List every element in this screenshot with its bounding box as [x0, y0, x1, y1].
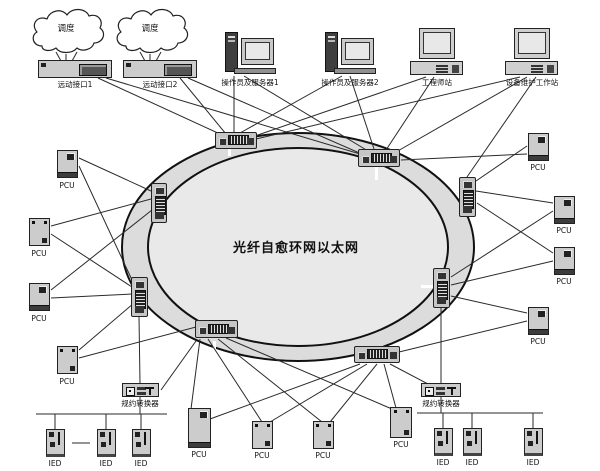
- pcu-label: PCU: [556, 277, 571, 286]
- pcu-bottom-3: [313, 421, 334, 449]
- cloud-label: 调度: [57, 25, 74, 34]
- pcu-right-2: [554, 196, 575, 224]
- ring-switch-right-lower: [433, 268, 450, 308]
- pcu-label: PCU: [530, 163, 545, 172]
- converter-port-icon: [126, 387, 135, 396]
- converter-antenna-icon: [145, 387, 154, 389]
- label-telecontrol-interface-2: 远动接口2: [143, 80, 178, 89]
- ring-switch-bottom-right: [354, 346, 400, 363]
- ied-left-1: [46, 429, 65, 457]
- ied-label: IED: [49, 459, 62, 468]
- server-tower-icon: [325, 32, 338, 72]
- ied-label: IED: [135, 459, 148, 468]
- ring-switch-top-right: [358, 149, 400, 167]
- converter-port-icon: [425, 387, 434, 396]
- pcu-label: PCU: [393, 440, 408, 449]
- pcu-label: PCU: [59, 377, 74, 386]
- ied-label: IED: [437, 458, 450, 467]
- converter-antenna-icon: [447, 387, 456, 389]
- server-base: [334, 68, 376, 74]
- switch-ports: [437, 281, 448, 300]
- pcu-label: PCU: [315, 451, 330, 460]
- switch-ports: [228, 135, 249, 145]
- pcu-label: PCU: [59, 181, 74, 190]
- ied-label: IED: [466, 458, 479, 467]
- label-engineer-station: 工程师站: [422, 78, 452, 87]
- server-monitor-icon: [341, 38, 374, 65]
- switch-ports: [155, 196, 166, 215]
- pcu-right-3: [554, 247, 575, 275]
- pcu-left-4: [57, 346, 78, 374]
- workstation-monitor-icon: [419, 28, 455, 59]
- pcu-label: PCU: [530, 337, 545, 346]
- workstation-monitor-icon: [514, 28, 550, 59]
- ring-switch-left-upper: [151, 183, 167, 223]
- network-diagram: 调度 调度 远动接口1 远动接口2 操作员及服务器1 操作员及服务器2 工程师站…: [0, 0, 600, 471]
- maintenance-workstation-icon: [504, 28, 560, 76]
- label-operator-server-1: 操作员及服务器1: [221, 78, 278, 87]
- label-telecontrol-interface-1: 远动接口1: [58, 80, 93, 89]
- pcu-bottom-right: [390, 407, 412, 438]
- ring-title: 光纤自愈环网以太网: [233, 237, 359, 256]
- ied-right-3: [524, 428, 543, 456]
- pcu-bottom-2: [252, 421, 273, 449]
- pcu-label: PCU: [254, 451, 269, 460]
- ied-left-3: [132, 429, 151, 457]
- label-operator-server-2: 操作员及服务器2: [321, 78, 378, 87]
- ied-label: IED: [527, 458, 540, 467]
- ied-label: IED: [100, 459, 113, 468]
- server-base: [234, 68, 276, 74]
- converter-label: 规约转换器: [422, 399, 460, 408]
- ring-switch-right-upper: [459, 177, 476, 217]
- cloud-shapes: [33, 9, 187, 52]
- pcu-label: PCU: [556, 226, 571, 235]
- workstation-case-icon: [505, 61, 558, 75]
- ied-right-2: [463, 428, 482, 456]
- switch-ports: [135, 290, 146, 309]
- pcu-left-1: [57, 150, 78, 178]
- pcu-bottom-1: [188, 408, 211, 448]
- protocol-converter-right: [421, 383, 461, 397]
- switch-ports: [367, 349, 388, 359]
- telecontrol-interface-2-device: [123, 60, 197, 78]
- cloud-label: 调度: [141, 25, 158, 34]
- protocol-converter-left: [122, 383, 159, 397]
- server-monitor-icon: [241, 38, 274, 65]
- operator-server-1-icon: [222, 30, 278, 76]
- ied-left-2: [97, 429, 116, 457]
- pcu-label: PCU: [191, 450, 206, 459]
- pcu-left-2: [29, 218, 50, 246]
- workstation-case-icon: [410, 61, 463, 75]
- label-maintenance-workstation: 设备维护工作站: [506, 78, 559, 87]
- ring-switch-left-lower: [131, 277, 148, 317]
- converter-label: 规约转换器: [121, 399, 159, 408]
- switch-ports: [371, 153, 392, 163]
- switch-ports: [463, 190, 474, 209]
- pcu-right-1: [528, 133, 549, 161]
- pcu-label: PCU: [31, 314, 46, 323]
- engineer-station-icon: [409, 28, 465, 76]
- telecontrol-interface-1-device: [38, 60, 112, 78]
- ring-switch-bottom-left: [195, 320, 238, 338]
- operator-server-2-icon: [322, 30, 378, 76]
- ied-right-1: [434, 428, 453, 456]
- switch-ports: [208, 324, 229, 334]
- pcu-left-3: [29, 283, 50, 311]
- server-tower-icon: [225, 32, 238, 72]
- ring-switch-top: [215, 132, 257, 149]
- pcu-label: PCU: [31, 249, 46, 258]
- pcu-right-4: [528, 307, 549, 335]
